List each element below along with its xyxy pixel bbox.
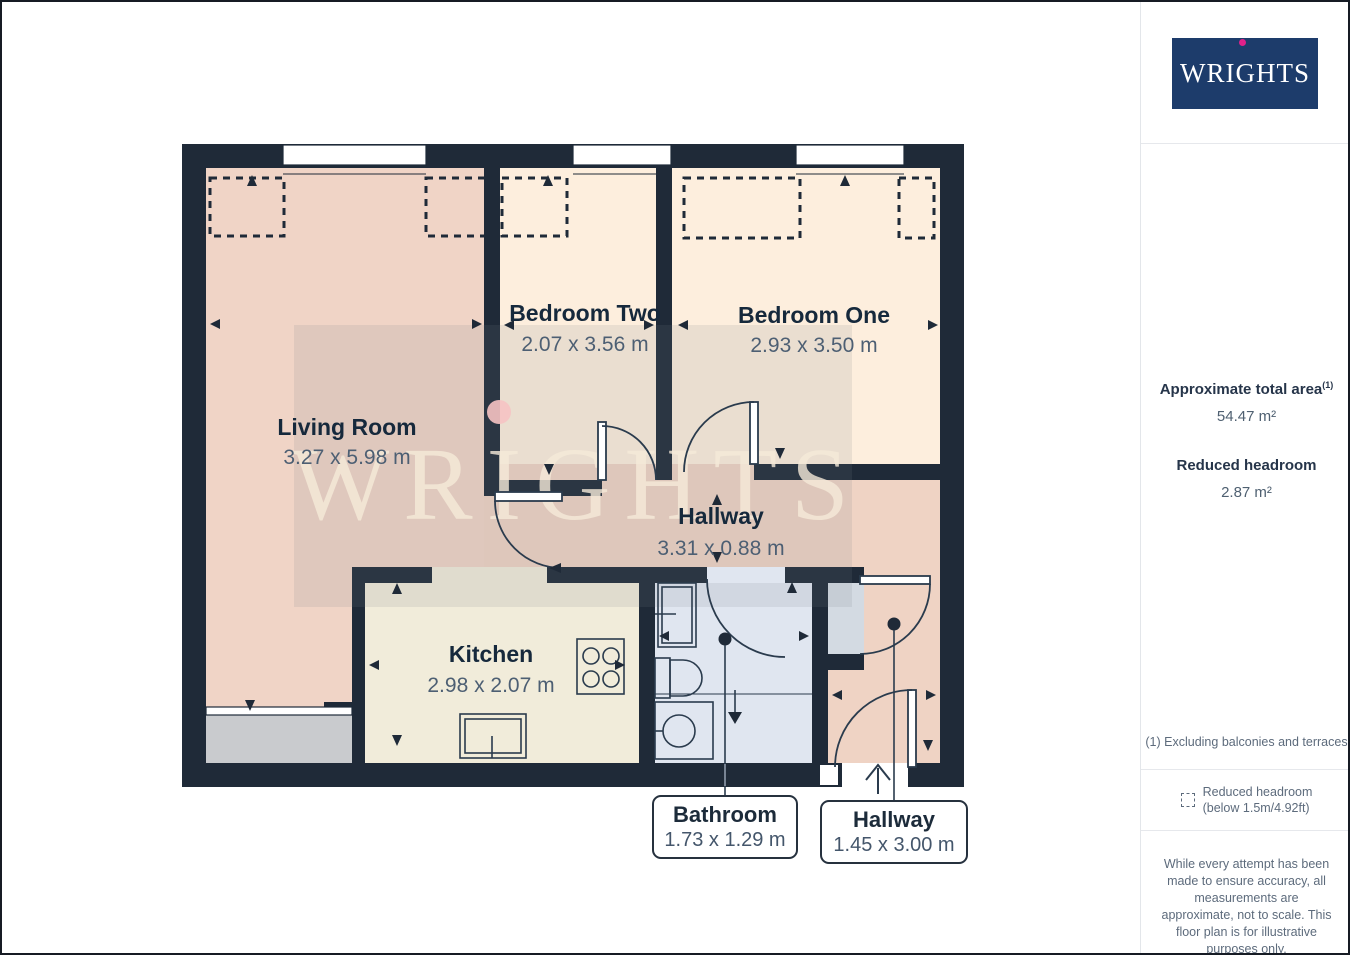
- bathroom-callout-name: Bathroom: [658, 802, 792, 828]
- hallway-callout-name: Hallway: [826, 807, 962, 833]
- room-label-kitchen: Kitchen: [449, 641, 533, 667]
- room-label-hallway: Hallway: [678, 503, 764, 529]
- window: [796, 145, 904, 165]
- footnote-marker: (1): [1322, 380, 1333, 390]
- balcony-window: [206, 707, 352, 715]
- hallway-callout: Hallway 1.45 x 3.00 m: [820, 800, 968, 864]
- room-label-bedroom-one: Bedroom One: [738, 302, 890, 328]
- footnote: (1) Excluding balconies and terraces: [1141, 715, 1350, 770]
- logo-dot-icon: [1239, 39, 1246, 46]
- disclaimer-text: While every attempt has been made to ens…: [1159, 856, 1335, 955]
- door-leaf: [750, 402, 758, 464]
- room-dims-hallway: 3.31 x 0.88 m: [657, 537, 784, 560]
- hallway-callout-dot: [888, 618, 901, 631]
- dashed-square-icon: [1181, 793, 1195, 807]
- bathroom-callout: Bathroom 1.73 x 1.29 m: [652, 795, 798, 859]
- room-label-bedroom-two: Bedroom Two: [509, 300, 661, 326]
- bathroom-callout-dims: 1.73 x 1.29 m: [658, 828, 792, 853]
- room-dims-kitchen: 2.98 x 2.07 m: [427, 674, 554, 697]
- entrance-door-leaf: [908, 690, 916, 767]
- logo-section: WRIGHTS: [1141, 2, 1350, 144]
- entrance-opening: [842, 763, 908, 787]
- reduced-headroom-label: Reduced headroom: [1141, 457, 1350, 474]
- wrights-logo: WRIGHTS: [1172, 38, 1318, 109]
- door-opening: [707, 567, 785, 583]
- wall-notch: [820, 765, 838, 785]
- floor-plan-drawing: WRIGHTS: [2, 2, 1140, 955]
- window: [573, 145, 671, 165]
- bathroom-callout-dot: [719, 633, 732, 646]
- legend-sublabel: (below 1.5m/4.92ft): [1203, 801, 1310, 815]
- floor-plan: WRIGHTS: [2, 2, 1140, 955]
- closet-door-leaf: [860, 576, 930, 584]
- watermark-dot: [487, 400, 511, 424]
- room-dims-living: 3.27 x 5.98 m: [283, 446, 410, 469]
- info-sidebar: WRIGHTS Approximate total area(1) 54.47 …: [1140, 2, 1350, 955]
- legend-label: Reduced headroom: [1203, 785, 1313, 799]
- balcony-floor: [206, 715, 352, 763]
- logo-text: WRIGHTS: [1180, 58, 1310, 89]
- total-area-value: 54.47 m²: [1141, 408, 1350, 425]
- area-stats: Approximate total area(1) 54.47 m² Reduc…: [1141, 380, 1350, 501]
- room-dims-bedroom-one: 2.93 x 3.50 m: [750, 334, 877, 357]
- total-area-label: Approximate total area(1): [1141, 380, 1350, 398]
- hallway-callout-dims: 1.45 x 3.00 m: [826, 833, 962, 858]
- reduced-headroom-legend: Reduced headroom (below 1.5m/4.92ft): [1141, 769, 1350, 831]
- door-leaf: [598, 422, 606, 480]
- watermark-text: WRIGHTS: [291, 427, 863, 542]
- legend-text: Reduced headroom (below 1.5m/4.92ft): [1203, 784, 1313, 816]
- reduced-headroom-value: 2.87 m²: [1141, 484, 1350, 501]
- room-dims-bedroom-two: 2.07 x 3.56 m: [521, 333, 648, 356]
- door-leaf: [495, 492, 562, 501]
- window: [283, 145, 426, 165]
- room-label-living: Living Room: [277, 414, 416, 440]
- disclaimer-section: While every attempt has been made to ens…: [1141, 830, 1350, 955]
- page: WRIGHTS: [0, 0, 1350, 955]
